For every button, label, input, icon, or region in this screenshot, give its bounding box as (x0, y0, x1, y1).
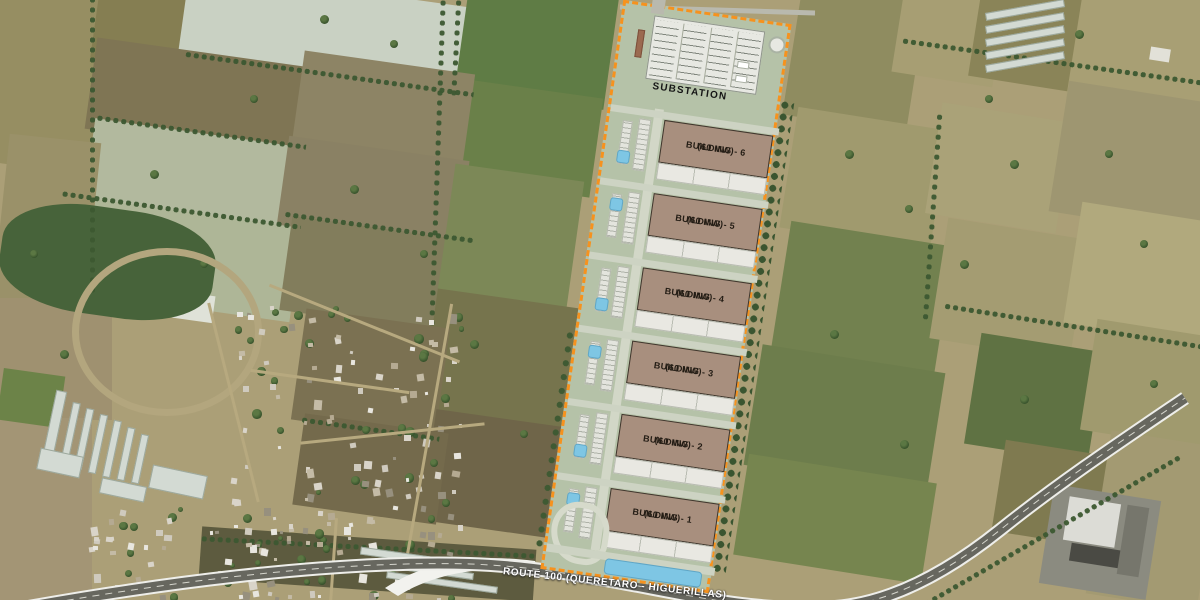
parking-lot (610, 265, 629, 318)
turnaround-circle (767, 35, 786, 54)
switchgear-bay (649, 20, 680, 79)
building-capacity-label: (60 MW) (675, 288, 713, 304)
switchgear-bay (675, 24, 707, 83)
building-capacity-label: (60 MW) (686, 214, 724, 230)
building-capacity-label: (60 MW) (643, 509, 681, 525)
substation-building (634, 29, 645, 58)
equipment-pad (735, 75, 748, 84)
parking-lot (589, 412, 608, 465)
parking-lot (632, 118, 651, 171)
building-capacity-label: (60 MW) (697, 141, 735, 157)
retention-pond (573, 444, 588, 459)
parking-lot (600, 339, 619, 392)
aerial-site-plan: SUBSTATION BUILDING - 6 (60 MW) BUILDING… (0, 0, 1200, 600)
retention-pond (609, 197, 624, 212)
building-capacity-label: (60 MW) (665, 361, 703, 377)
access-road-stub (651, 0, 667, 15)
parking-lot (621, 192, 640, 245)
retention-pond (616, 149, 631, 164)
retention-pond (594, 297, 609, 312)
switchgear-bay (703, 28, 735, 87)
building-capacity-label: (60 MW) (654, 435, 692, 451)
retention-pond (587, 344, 602, 359)
